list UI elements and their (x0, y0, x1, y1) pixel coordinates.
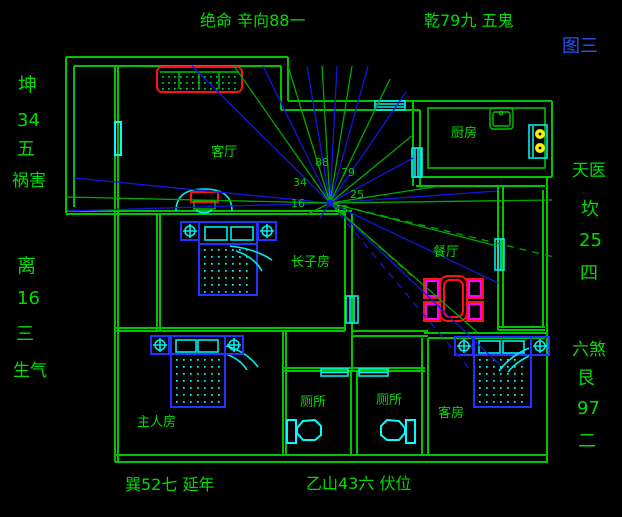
compass-left-lower-number: 16 (17, 290, 40, 308)
qi-center-point (327, 200, 334, 207)
bed-eldest-son (199, 222, 272, 295)
room-label-guest: 客房 (438, 407, 464, 420)
room-label-toilet-right: 厕所 (376, 394, 402, 407)
compass-left-lower-star: 三 (16, 326, 34, 344)
nightstand-compass-icon (151, 336, 169, 354)
compass-left-upper-name: 祸害 (12, 173, 46, 190)
nightstand-compass-icon (181, 222, 199, 240)
center-number-79: 79 (341, 167, 355, 178)
compass-left-lower-trigram: 离 (17, 257, 36, 276)
compass-right-lower-star: 二 (578, 433, 596, 451)
compass-right-lower-name: 六煞 (572, 342, 606, 359)
compass-label-bottom-center: 乙山43六 伏位 (306, 476, 411, 492)
floorplan-page: 绝命 辛向88一 乾79九 五鬼 图三 坤 34 五 祸害 离 16 三 生气 … (0, 0, 622, 517)
kitchen-sink (490, 108, 513, 129)
compass-left-upper-star: 五 (17, 141, 35, 159)
windows-layer (115, 101, 504, 376)
dining-chair (467, 279, 483, 298)
compass-label-bottom-left: 巽52七 延年 (125, 477, 214, 493)
center-number-25: 25 (350, 189, 364, 200)
window-top (375, 101, 405, 110)
bed-master (171, 336, 258, 407)
compass-label-top-left: 绝命 辛向88一 (200, 13, 305, 29)
compass-left-upper-trigram: 坤 (18, 76, 37, 95)
compass-right-upper-star: 四 (580, 265, 598, 283)
center-number-16: 16 (291, 198, 305, 209)
qi-rays-layer (66, 66, 554, 372)
dining-chair (467, 302, 483, 321)
figure-label: 图三 (562, 38, 598, 56)
kitchen-inner-wall (428, 108, 545, 168)
compass-right-upper-trigram: 坎 (581, 201, 599, 219)
dining-table-set (424, 276, 483, 321)
nightstand-compass-icon (455, 337, 473, 355)
room-label-master: 主人房 (137, 416, 176, 429)
compass-label-top-right: 乾79九 五鬼 (424, 13, 513, 29)
center-number-88: 88 (315, 157, 329, 168)
compass-right-lower-number: 97 (577, 400, 600, 418)
room-label-living: 客厅 (211, 146, 237, 159)
sofa (157, 67, 242, 92)
toilet-fixture-right (381, 420, 415, 443)
room-label-dining: 餐厅 (433, 246, 459, 259)
center-number-43: 43 (334, 204, 348, 215)
room-label-eldest-son: 长子房 (291, 256, 330, 269)
center-number-34: 34 (293, 177, 307, 188)
toilet-fixture-left (287, 420, 321, 443)
room-label-kitchen: 厨房 (451, 127, 477, 140)
compass-right-lower-trigram: 艮 (577, 370, 595, 388)
compass-right-upper-name: 天医 (572, 163, 606, 180)
room-label-toilet-left: 厕所 (300, 396, 326, 409)
compass-right-upper-number: 25 (579, 232, 602, 250)
compass-left-lower-name: 生气 (13, 363, 47, 380)
nightstand-compass-icon (258, 222, 276, 240)
compass-left-upper-number: 34 (17, 112, 40, 130)
